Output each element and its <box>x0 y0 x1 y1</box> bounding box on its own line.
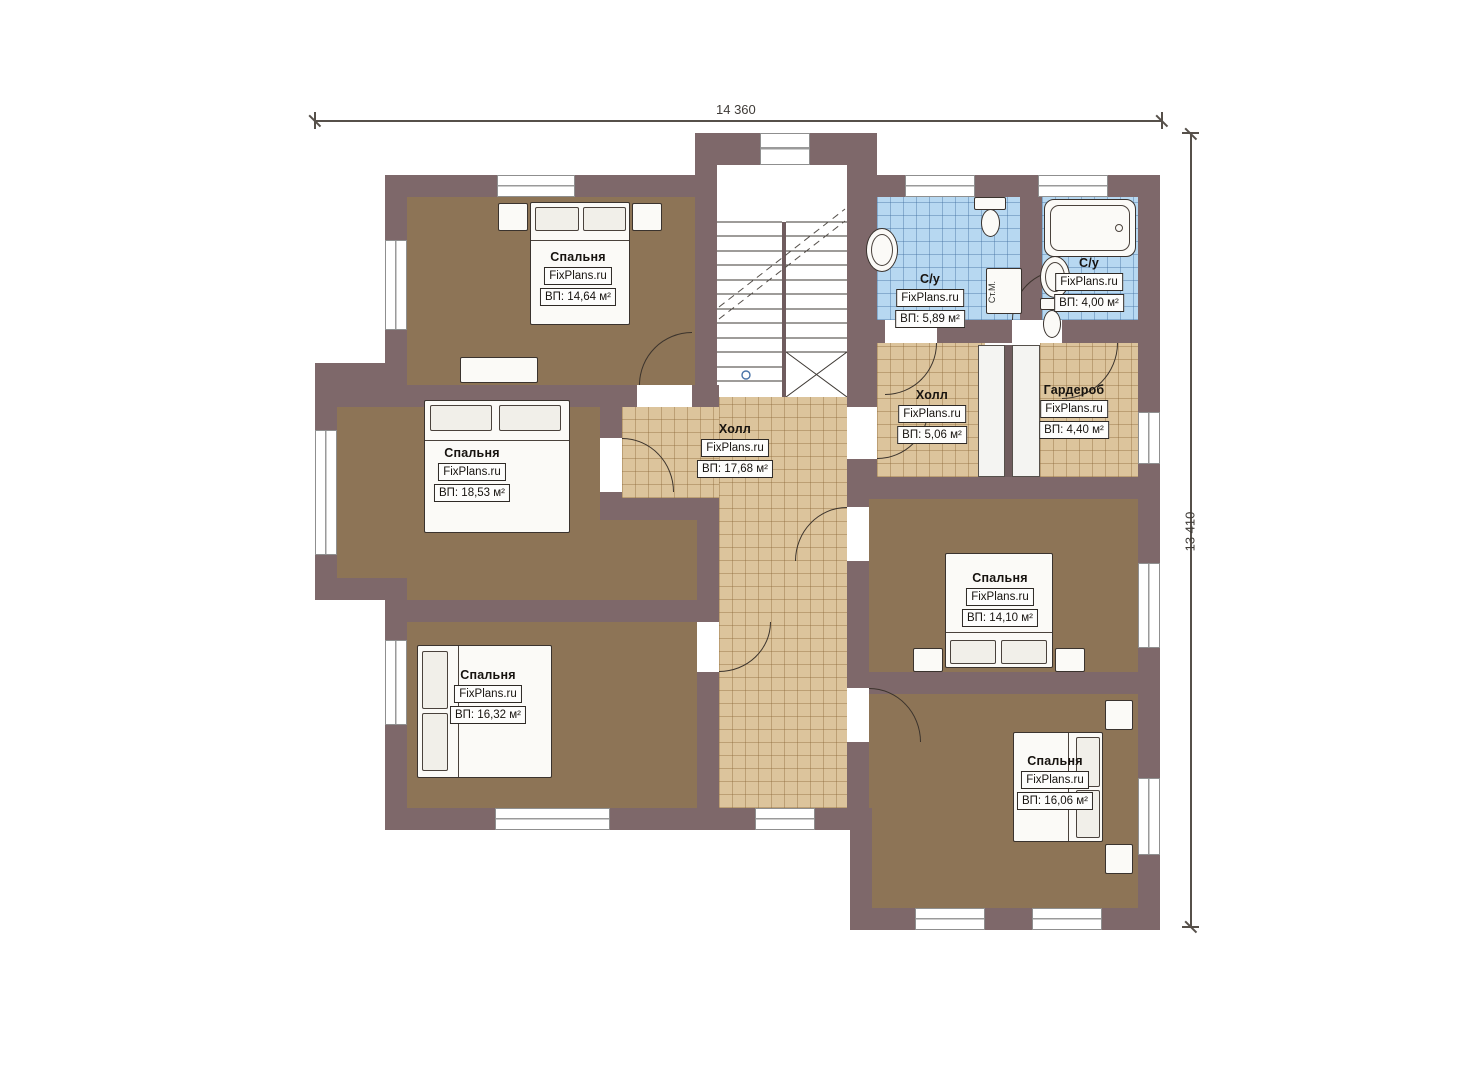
room-floor-bedroom-2 <box>407 578 600 600</box>
room-name: С/у <box>920 272 940 286</box>
nightstand <box>1105 700 1133 730</box>
blanket-line <box>531 240 629 241</box>
room-label-bedroom-4: Спальня FixPlans.ru ВП: 14,10 м² <box>962 571 1038 627</box>
bathtub <box>1044 199 1136 257</box>
window <box>497 175 575 197</box>
door-opening <box>637 385 692 407</box>
nightstand <box>1055 648 1085 672</box>
room-label-hall-main: Холл FixPlans.ru ВП: 17,68 м² <box>697 422 773 478</box>
room-name: С/у <box>1079 256 1099 270</box>
wall <box>869 477 1138 499</box>
room-label-bath-2: С/у FixPlans.ru ВП: 4,00 м² <box>1054 256 1124 312</box>
pillow <box>1001 640 1047 664</box>
window <box>315 430 337 555</box>
door-opening <box>1012 320 1040 343</box>
room-label-bedroom-1: Спальня FixPlans.ru ВП: 14,64 м² <box>540 250 616 306</box>
room-name: Спальня <box>972 571 1027 585</box>
room-name: Холл <box>719 422 751 436</box>
room-label-bedroom-2: Спальня FixPlans.ru ВП: 18,53 м² <box>434 446 510 502</box>
toilet-bowl <box>981 209 1000 237</box>
room-area: ВП: 17,68 м² <box>697 460 773 478</box>
bathtub-drain <box>1115 224 1123 232</box>
window <box>1032 908 1102 930</box>
brand-label: FixPlans.ru <box>966 588 1034 606</box>
nightstand <box>632 203 662 231</box>
nightstand <box>498 203 528 231</box>
brand-label: FixPlans.ru <box>438 463 506 481</box>
room-name: Холл <box>916 388 948 402</box>
room-label-wardrobe: Гардероб FixPlans.ru ВП: 4,40 м² <box>1039 383 1109 439</box>
stairwell <box>717 155 847 397</box>
brand-label: FixPlans.ru <box>701 439 769 457</box>
room-area: ВП: 18,53 м² <box>434 484 510 502</box>
blanket-line <box>946 632 1052 633</box>
room-area: ВП: 16,06 м² <box>1017 792 1093 810</box>
sink <box>866 228 898 272</box>
brand-label: FixPlans.ru <box>1055 273 1123 291</box>
room-name: Спальня <box>550 250 605 264</box>
door-opening <box>600 438 622 492</box>
sink-basin <box>871 234 893 266</box>
window <box>1138 778 1160 855</box>
brand-label: FixPlans.ru <box>1021 771 1089 789</box>
room-area: ВП: 4,40 м² <box>1039 421 1109 439</box>
window <box>905 175 975 197</box>
wall <box>600 498 719 520</box>
wall <box>1005 345 1012 477</box>
stairs-icon <box>717 155 847 397</box>
door-opening <box>697 622 719 672</box>
pillow <box>950 640 996 664</box>
floor-plan: Ст.М. Спальня FixPlans.ru ВП: 14,64 м² С… <box>0 0 1473 1080</box>
pillow <box>583 207 626 231</box>
nightstand <box>1105 844 1133 874</box>
room-area: ВП: 14,64 м² <box>540 288 616 306</box>
room-label-bedroom-3: Спальня FixPlans.ru ВП: 16,32 м² <box>450 668 526 724</box>
brand-label: FixPlans.ru <box>896 289 964 307</box>
washing-machine-label: Ст.М. <box>987 281 997 303</box>
window <box>385 240 407 330</box>
dimension-label: 14 360 <box>716 102 756 117</box>
pillow <box>422 651 448 709</box>
room-label-bath-1: С/у FixPlans.ru ВП: 5,89 м² <box>895 272 965 328</box>
pillow <box>430 405 492 431</box>
room-label-bedroom-5: Спальня FixPlans.ru ВП: 16,06 м² <box>1017 754 1093 810</box>
toilet-bowl <box>1043 310 1061 338</box>
wall <box>385 600 697 622</box>
window <box>915 908 985 930</box>
room-name: Спальня <box>1027 754 1082 768</box>
dimension-line <box>315 120 1162 122</box>
pillow <box>499 405 561 431</box>
room-name: Спальня <box>444 446 499 460</box>
brand-label: FixPlans.ru <box>898 405 966 423</box>
wall <box>850 908 1160 930</box>
room-label-hall-small: Холл FixPlans.ru ВП: 5,06 м² <box>897 388 967 444</box>
room-area: ВП: 16,32 м² <box>450 706 526 724</box>
room-area: ВП: 5,89 м² <box>895 310 965 328</box>
room-name: Спальня <box>460 668 515 682</box>
window <box>385 640 407 725</box>
pillow <box>422 713 448 771</box>
window <box>1138 412 1160 464</box>
dimension-label: 13 410 <box>1183 502 1198 562</box>
door-opening <box>847 407 877 459</box>
window <box>755 808 815 830</box>
room-area: ВП: 14,10 м² <box>962 609 1038 627</box>
wall <box>695 133 717 397</box>
door-opening <box>847 507 869 561</box>
brand-label: FixPlans.ru <box>544 267 612 285</box>
pillow <box>535 207 579 231</box>
nightstand <box>913 648 943 672</box>
washing-machine: Ст.М. <box>986 268 1022 314</box>
room-area: ВП: 4,00 м² <box>1054 294 1124 312</box>
brand-label: FixPlans.ru <box>1040 400 1108 418</box>
window <box>1138 563 1160 648</box>
blanket-line <box>425 440 569 441</box>
brand-label: FixPlans.ru <box>454 685 522 703</box>
door-opening <box>847 688 869 742</box>
dresser <box>460 357 538 383</box>
window <box>1038 175 1108 197</box>
room-name: Гардероб <box>1044 383 1105 397</box>
closet <box>978 345 1005 477</box>
window <box>495 808 610 830</box>
room-floor-bedroom-2 <box>600 520 697 600</box>
room-area: ВП: 5,06 м² <box>897 426 967 444</box>
closet <box>1012 345 1040 477</box>
wall <box>697 520 719 830</box>
window <box>760 133 810 165</box>
wall <box>869 672 1138 694</box>
